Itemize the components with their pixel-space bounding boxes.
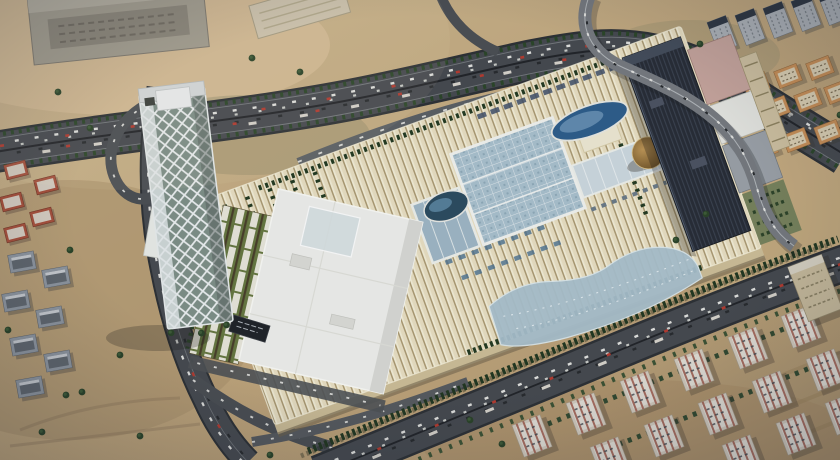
vignette [0,0,840,460]
scene-canvas: Aerial dusk rendering of a mega shopping… [0,0,840,460]
aerial-render: Aerial dusk rendering of a mega shopping… [0,0,840,460]
